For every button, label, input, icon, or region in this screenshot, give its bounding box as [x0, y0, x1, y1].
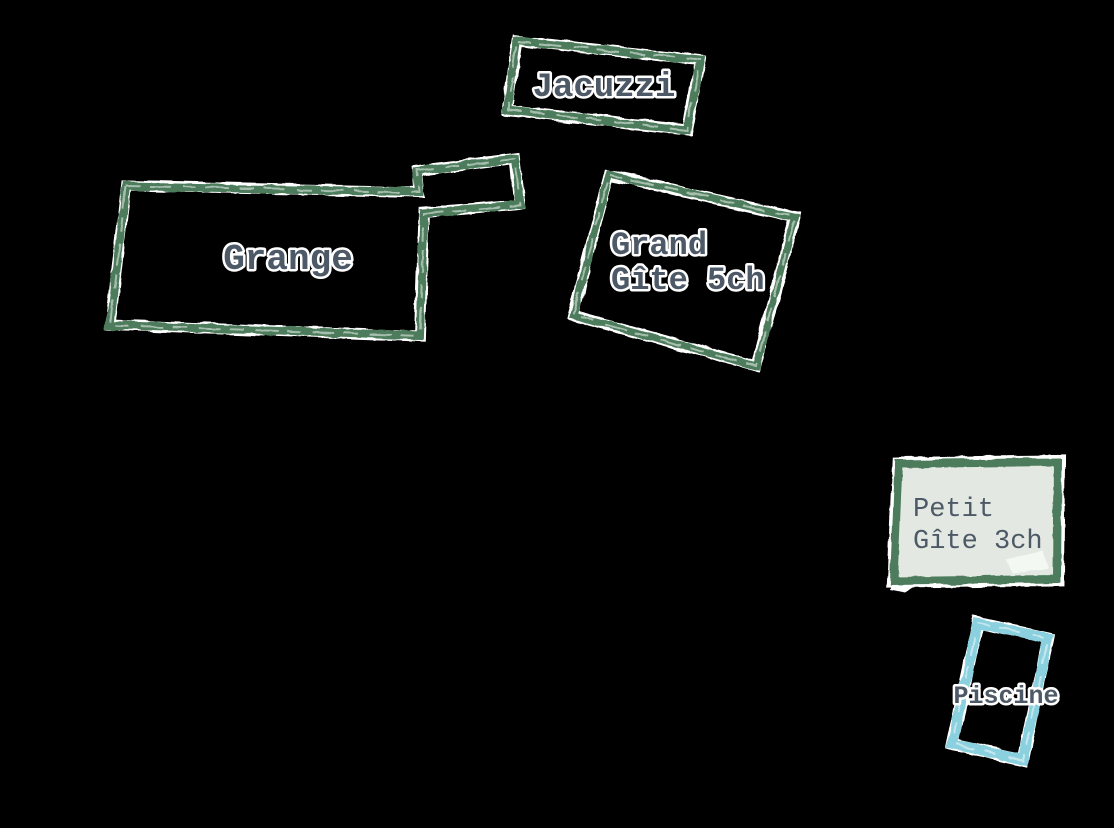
- svg-text:Gîte 3ch: Gîte 3ch: [913, 527, 1043, 557]
- svg-text:Grange: Grange: [223, 239, 353, 280]
- svg-text:Jacuzzi: Jacuzzi: [533, 69, 676, 107]
- svg-text:Petit: Petit: [913, 495, 994, 525]
- svg-text:Gîte 5ch: Gîte 5ch: [611, 262, 765, 299]
- svg-text:Grand: Grand: [611, 227, 707, 264]
- svg-text:Piscine: Piscine: [953, 682, 1058, 711]
